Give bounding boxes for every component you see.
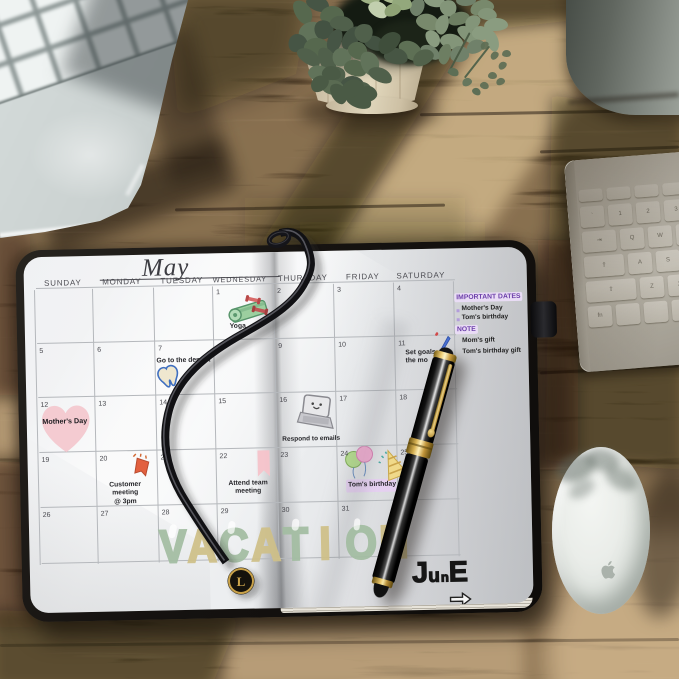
svg-text:L: L [237,574,246,589]
